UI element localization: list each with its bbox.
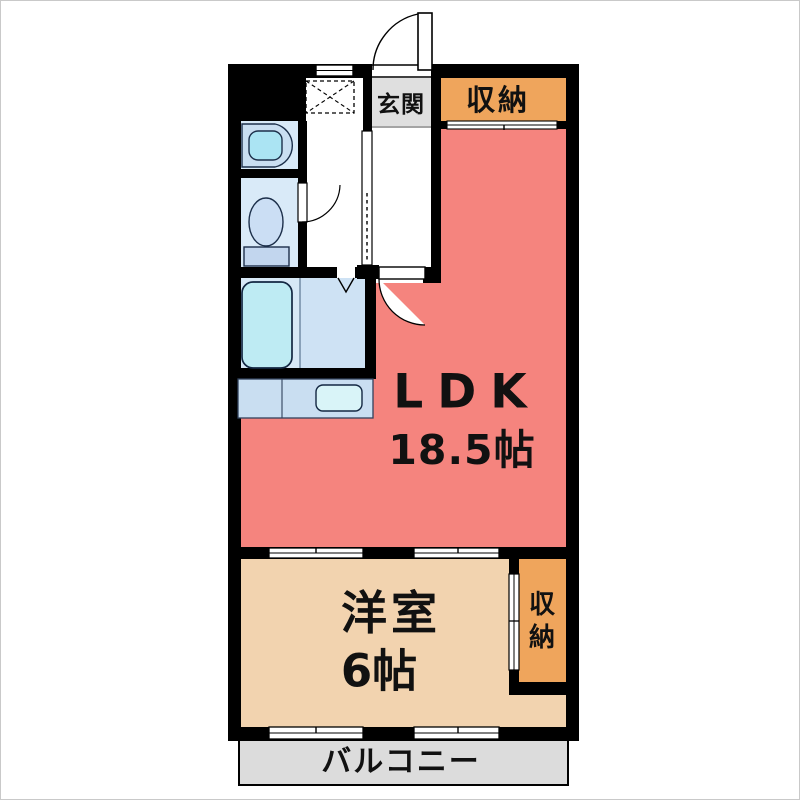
kitchen-counter bbox=[238, 379, 373, 418]
toilet-door-leaf bbox=[298, 183, 307, 222]
wall-closet-bottom bbox=[509, 682, 579, 695]
wall-corridor-left bbox=[363, 64, 372, 131]
closet-label-char2: 納 bbox=[529, 622, 555, 653]
wall-block-topleft bbox=[238, 64, 306, 121]
floorplan-svg: 玄関 収納 LDK 18.5帖 洋室 6帖 収 納 バルコニー bbox=[1, 1, 799, 799]
entrance-door-arc bbox=[373, 14, 418, 70]
washbasin-bowl bbox=[249, 131, 282, 160]
wall-ldkdoor-stub-left bbox=[357, 265, 379, 279]
window-balcony-1 bbox=[269, 727, 363, 739]
window-ldk-bedroom-2 bbox=[414, 547, 499, 558]
wall-bath-right bbox=[365, 278, 376, 379]
toilet-door bbox=[298, 183, 340, 222]
bathtub bbox=[242, 282, 292, 368]
washbasin bbox=[242, 124, 292, 167]
toilet-door-arc bbox=[302, 185, 340, 222]
wall-right bbox=[566, 64, 579, 741]
storage-top-label: 収納 bbox=[466, 83, 530, 117]
entrance-door-leaf bbox=[418, 13, 432, 70]
closet-sliding-door bbox=[509, 574, 519, 670]
wall-corridor-right bbox=[431, 64, 441, 283]
wall-ldkdoor-stub-right bbox=[423, 267, 441, 283]
kitchen-dashed-unit bbox=[306, 81, 354, 113]
sliding-door-corridor bbox=[362, 131, 372, 265]
toilet-bowl bbox=[249, 198, 283, 246]
storage-sliding-door bbox=[447, 121, 557, 130]
window-top bbox=[316, 65, 353, 76]
window-balcony-2 bbox=[414, 727, 499, 739]
bedroom-closet bbox=[519, 559, 566, 682]
toilet-tank bbox=[244, 247, 289, 266]
ldk-label: LDK bbox=[393, 365, 540, 420]
wall-closet-stub-bottom bbox=[509, 670, 519, 684]
ldk-size-label: 18.5帖 bbox=[388, 426, 535, 474]
wall-closet-stub-top bbox=[509, 559, 519, 574]
bedroom-size-label: 6帖 bbox=[341, 645, 417, 698]
wall-bath-bottom bbox=[228, 368, 376, 379]
ldk-door-leaf bbox=[379, 267, 425, 279]
kitchen-sink bbox=[316, 385, 362, 411]
window-ldk-bedroom-1 bbox=[269, 547, 363, 558]
closet-label-char1: 収 bbox=[529, 590, 556, 620]
bedroom-label: 洋室 bbox=[341, 586, 441, 640]
balcony-label: バルコニー bbox=[321, 745, 480, 780]
floorplan-image: 玄関 収納 LDK 18.5帖 洋室 6帖 収 納 バルコニー bbox=[0, 0, 800, 800]
wall-washroom-toilet bbox=[228, 169, 307, 178]
genkan-label: 玄関 bbox=[377, 91, 425, 118]
